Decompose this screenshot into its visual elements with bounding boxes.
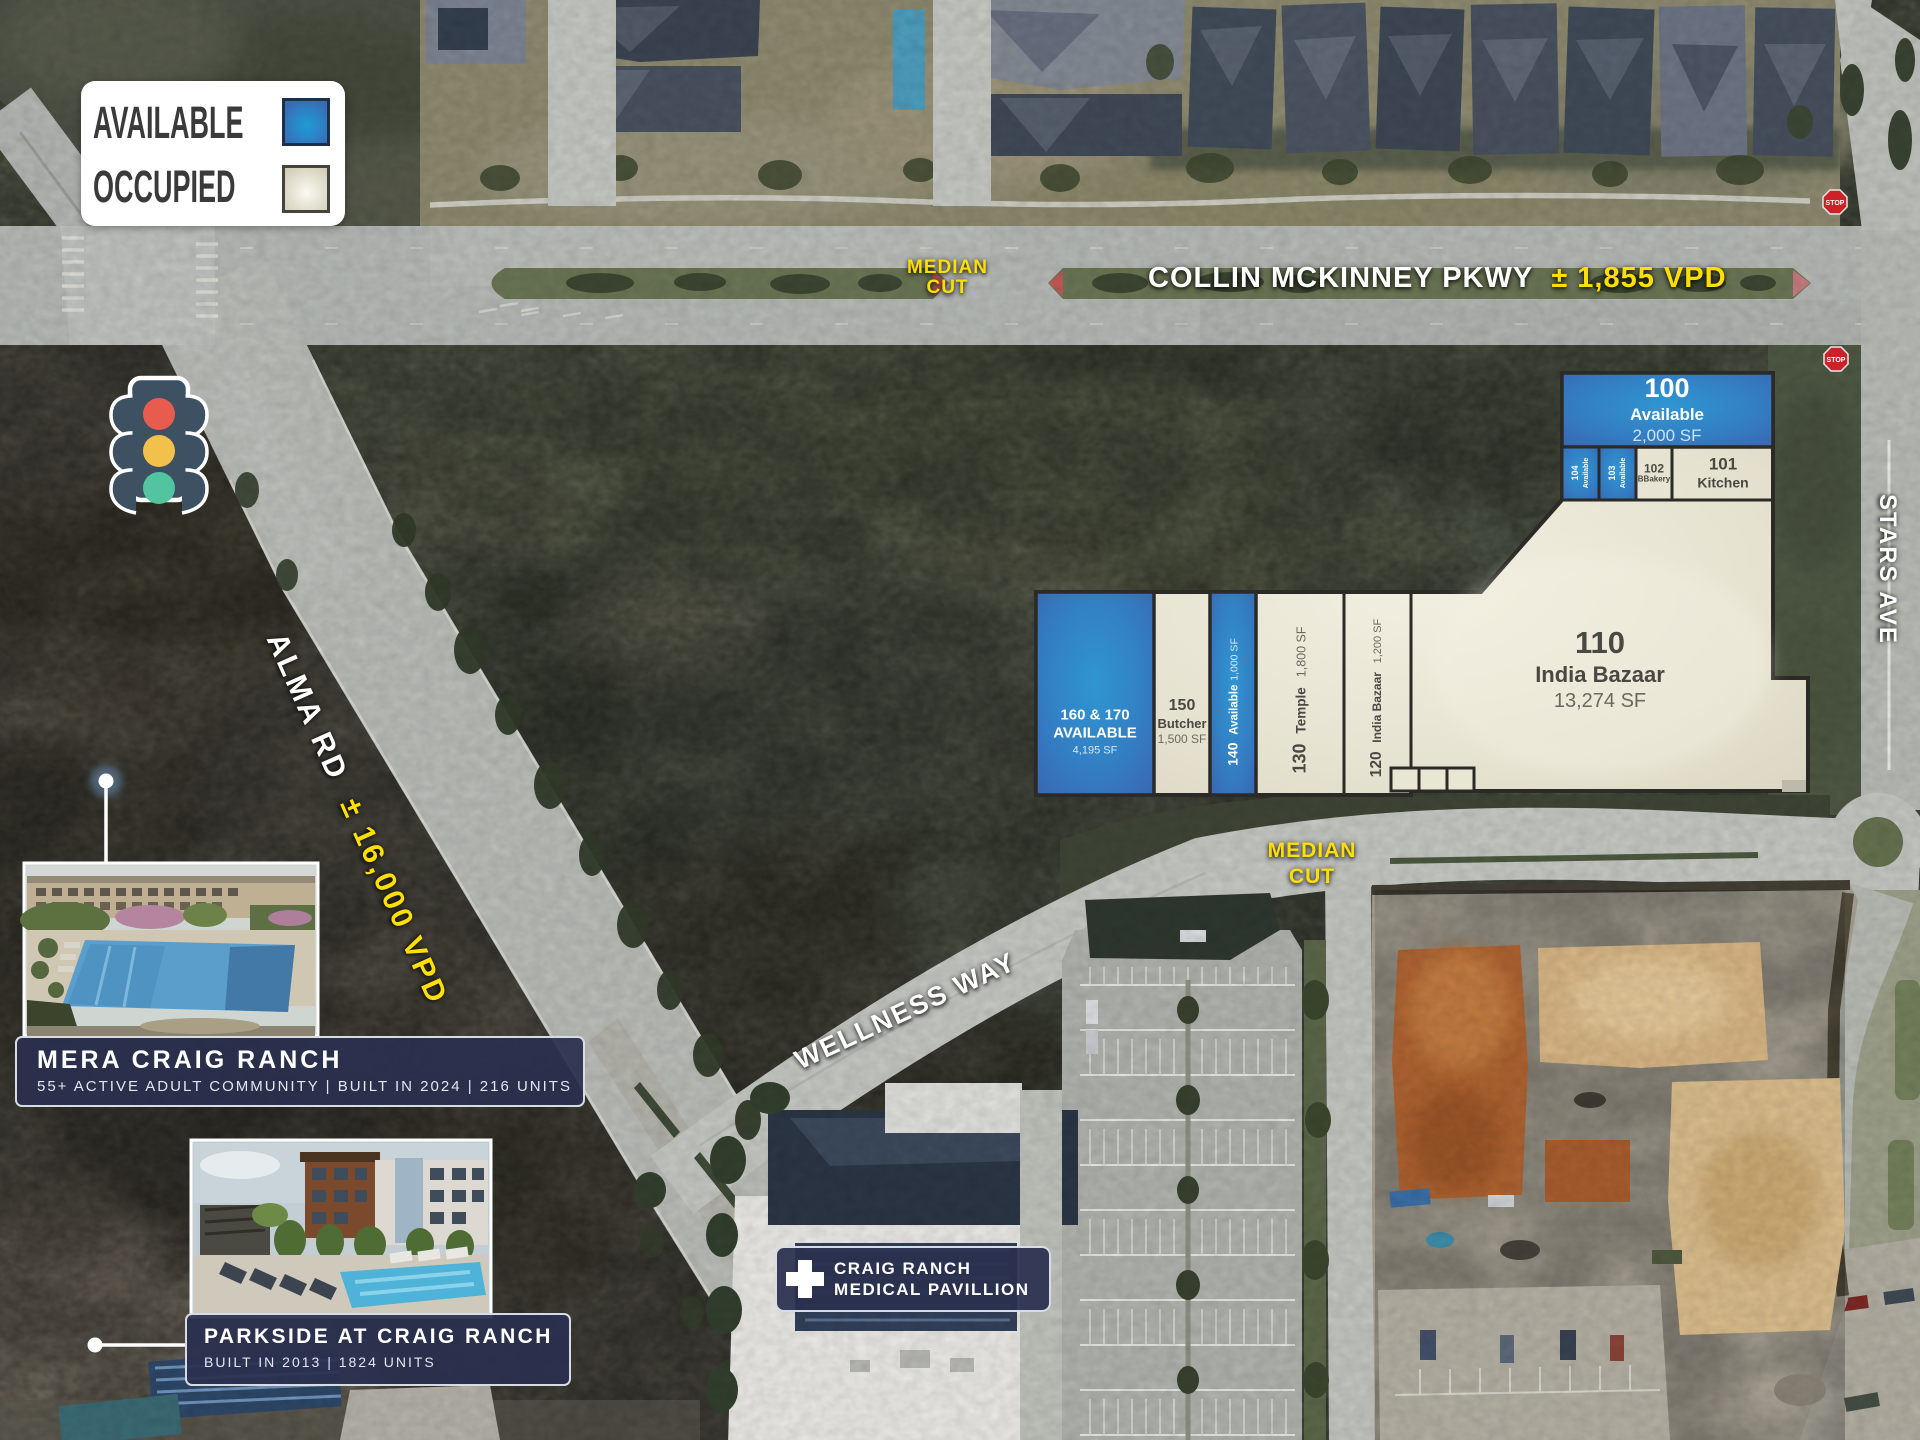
svg-text:STOP: STOP (1826, 200, 1845, 207)
svg-text:STOP: STOP (1827, 357, 1846, 364)
